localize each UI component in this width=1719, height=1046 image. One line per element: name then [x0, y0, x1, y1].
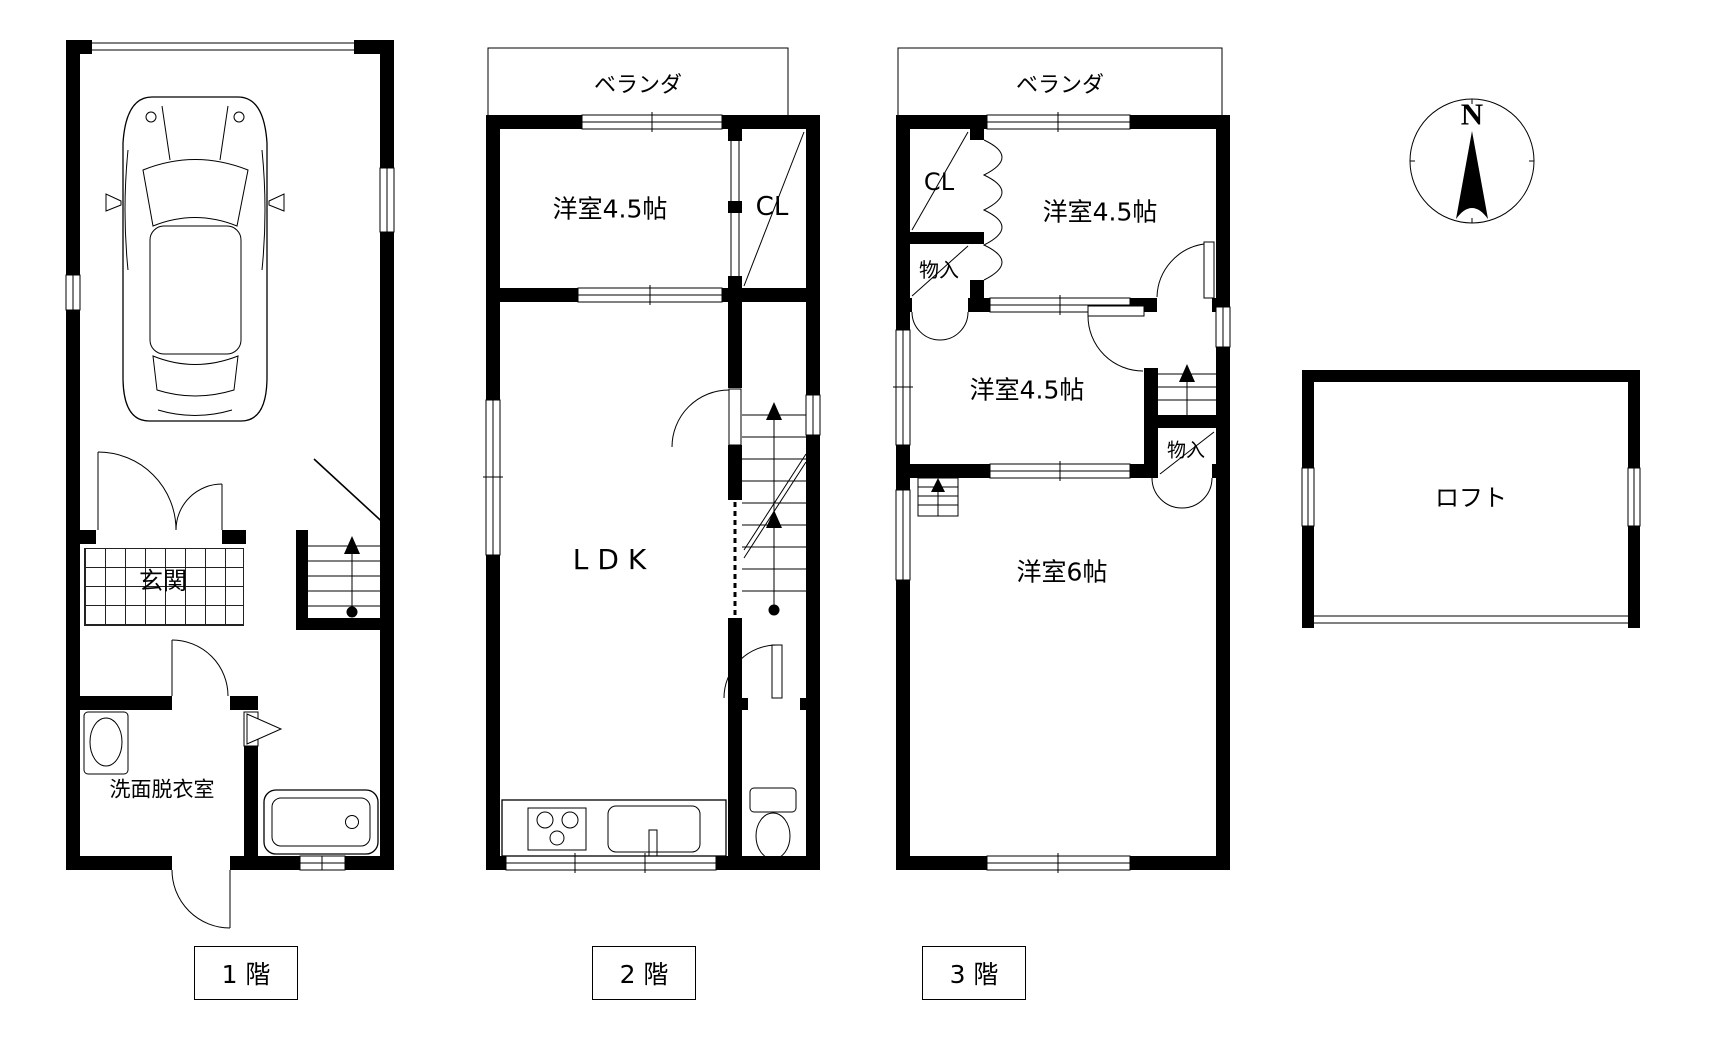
- room-label-storage-upper: 物入: [919, 260, 959, 280]
- floor1-title: 1 階: [222, 955, 271, 991]
- floor1-title-box: 1 階: [194, 946, 298, 1000]
- room-label-western-room-f3-mid: 洋室4.5帖: [970, 378, 1085, 403]
- bath-door-icon: [244, 712, 281, 746]
- washroom-door: [172, 640, 228, 696]
- compass-north-label: N: [1461, 99, 1483, 130]
- floor2-plan: [483, 48, 820, 873]
- floorplan-page: .w{fill:#000;stroke:none} .ln{stroke:#00…: [0, 0, 1719, 1046]
- room-label-closet-f3: CL: [924, 170, 954, 194]
- floor1-windows: [66, 168, 394, 870]
- storage-lower-doors: [1152, 478, 1212, 508]
- room-label-loft: ロフト: [1435, 486, 1507, 510]
- entrance-double-door: [98, 452, 222, 530]
- bathtub-icon: [264, 790, 378, 854]
- room-label-western-room-f3-top: 洋室4.5帖: [1043, 200, 1158, 225]
- floor2-stairs: [742, 402, 806, 616]
- floor2-walls: [486, 115, 820, 870]
- room-label-storage-lower: 物入: [1167, 442, 1205, 461]
- garage-opening: [92, 43, 354, 50]
- car-icon: [106, 97, 284, 421]
- room-label-entrance: 玄関: [139, 569, 187, 593]
- room-label-western-room-f2: 洋室4.5帖: [553, 197, 668, 222]
- kitchen-counter: [502, 800, 726, 856]
- floor3-stairs: [1158, 364, 1216, 415]
- ldk-door: [672, 389, 741, 447]
- floor2-title-box: 2 階: [592, 946, 696, 1000]
- closet-bifold-door: [984, 140, 1002, 280]
- toilet-icon: [750, 788, 796, 859]
- floor3-title-box: 3 階: [922, 946, 1026, 1000]
- mid-room-door: [1088, 306, 1144, 371]
- room-label-washroom: 洗面脱衣室: [110, 780, 215, 801]
- loft-stairs: [918, 478, 958, 516]
- room-label-veranda-f3: ベランダ: [1016, 75, 1104, 97]
- floor3-title: 3 階: [950, 955, 999, 991]
- floorplan-drawing: .w{fill:#000;stroke:none} .ln{stroke:#00…: [0, 0, 1719, 1046]
- room-label-ldk: LDK: [573, 546, 656, 574]
- room-label-veranda-f2: ベランダ: [594, 75, 682, 97]
- floor1-stairs: [308, 536, 380, 618]
- floor2-title: 2 階: [620, 955, 669, 991]
- floor3-walls: [896, 115, 1230, 870]
- top-room-door: [1157, 242, 1214, 298]
- storage-upper-doors: [912, 312, 968, 340]
- rear-exterior-door: [172, 870, 230, 928]
- room-label-western-room-large: 洋室6帖: [1017, 560, 1108, 585]
- room-label-closet-f2: CL: [756, 194, 789, 220]
- sink-icon: [84, 712, 128, 774]
- floor2-windows: [483, 112, 820, 873]
